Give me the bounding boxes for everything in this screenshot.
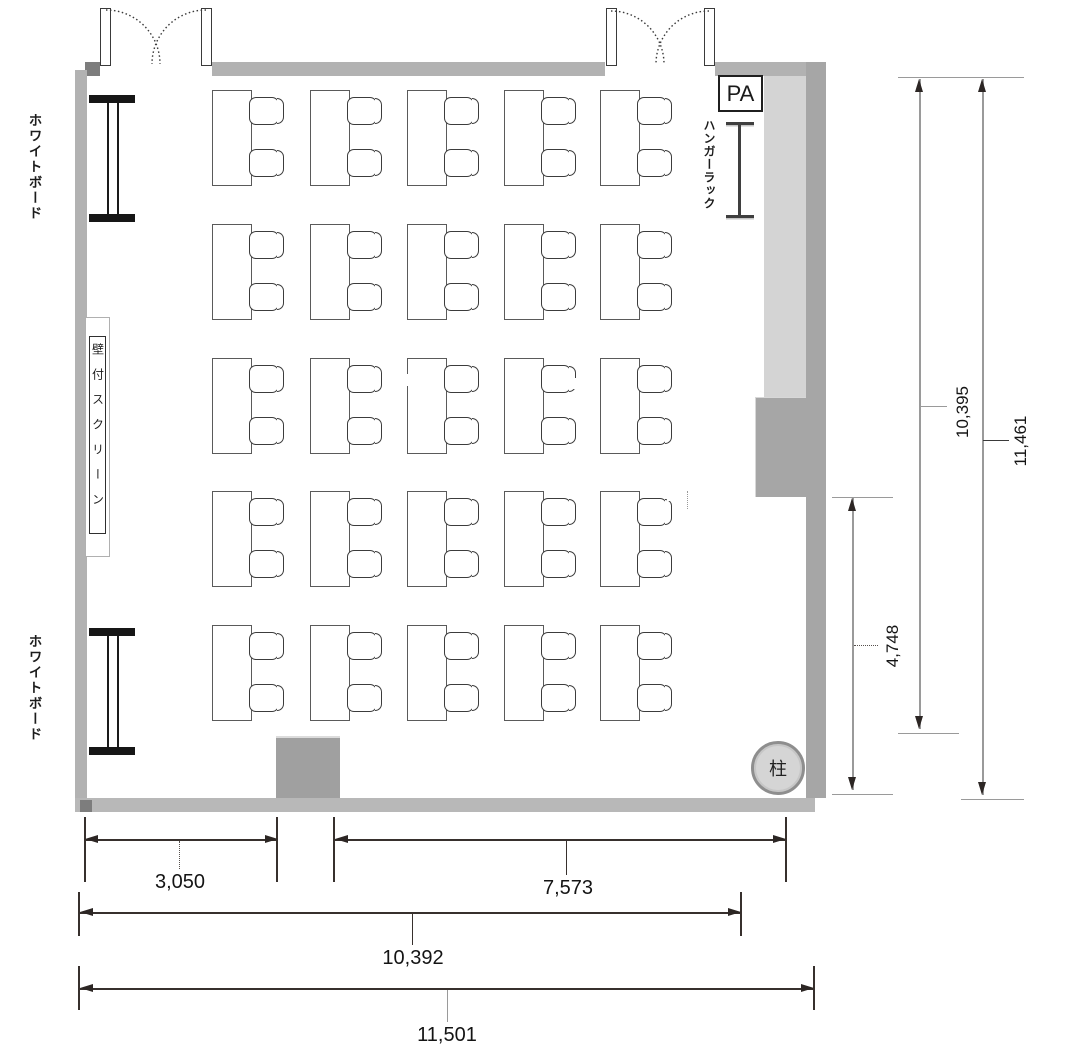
arrow-left-icon <box>80 908 93 916</box>
table-marker <box>569 378 594 389</box>
extension-line <box>961 799 1024 800</box>
extension-line-top <box>898 77 1024 78</box>
dim-leader <box>920 406 947 407</box>
chair <box>444 632 474 660</box>
chair <box>249 97 279 125</box>
dimension-label-3050: 3,050 <box>151 869 209 895</box>
dimension-label-right-overall: 11,461 <box>1010 399 1032 483</box>
chair <box>249 365 279 393</box>
extension-tick <box>785 817 787 882</box>
table <box>212 358 252 454</box>
chair <box>249 283 279 311</box>
dimension-line-right-overall <box>982 79 984 795</box>
chair <box>637 365 667 393</box>
arrow-right-icon <box>728 908 741 916</box>
dim-leader <box>179 841 180 869</box>
chair <box>347 365 377 393</box>
dimension-label-right-inner: 10,395 <box>952 370 974 454</box>
chair <box>347 632 377 660</box>
hanger-rack-cap-bottom <box>726 215 754 218</box>
dimension-line-right-partial <box>852 498 854 790</box>
dimension-line-10392 <box>80 912 741 914</box>
arrow-down-icon <box>848 777 856 790</box>
dimension-label-right-partial: 4,748 <box>882 604 904 688</box>
chair <box>444 684 474 712</box>
arrow-up-icon <box>978 79 986 92</box>
hanger-rack-label: ハンガーラック <box>703 119 715 210</box>
table <box>504 90 544 186</box>
table <box>212 224 252 320</box>
table <box>310 625 350 721</box>
dim-leader <box>566 841 567 875</box>
chair <box>444 498 474 526</box>
chair <box>249 498 279 526</box>
wall-screen-label: 壁付スクリーン <box>92 337 104 533</box>
chair <box>347 97 377 125</box>
table <box>407 358 447 454</box>
chair <box>541 684 571 712</box>
chair <box>249 417 279 445</box>
dim-leader <box>447 990 448 1022</box>
table <box>600 90 640 186</box>
chair <box>444 97 474 125</box>
chair <box>444 417 474 445</box>
arrow-up-icon <box>915 79 923 92</box>
chair <box>444 231 474 259</box>
dim-leader <box>854 645 878 646</box>
arrow-down-icon <box>978 782 986 795</box>
dimension-label-10392: 10,392 <box>377 945 449 971</box>
chair <box>541 417 571 445</box>
chair <box>444 550 474 578</box>
arrow-up-icon <box>848 498 856 511</box>
chair <box>637 550 667 578</box>
chair <box>541 550 571 578</box>
table <box>407 224 447 320</box>
table <box>504 224 544 320</box>
chair <box>637 97 667 125</box>
table <box>504 625 544 721</box>
chair <box>637 632 667 660</box>
whiteboard-bottom-shaft <box>107 636 119 747</box>
wall-screen-case: 壁付スクリーン <box>89 336 106 534</box>
dimension-line-3050 <box>85 839 278 841</box>
chair <box>249 632 279 660</box>
table <box>407 90 447 186</box>
chair <box>347 417 377 445</box>
whiteboard-top-label: ホワイトボード <box>27 113 41 222</box>
arrow-left-icon <box>335 835 348 843</box>
table-marker <box>667 479 677 501</box>
hanger-rack-stem <box>738 124 741 217</box>
chair <box>637 149 667 177</box>
table <box>212 90 252 186</box>
chair <box>249 684 279 712</box>
table <box>407 625 447 721</box>
chair <box>541 149 571 177</box>
pa-box: PA <box>718 75 763 112</box>
whiteboard-top-shaft <box>107 103 119 214</box>
arrow-left-icon <box>85 835 98 843</box>
table <box>600 491 640 587</box>
chair <box>541 365 571 393</box>
dimension-label-7573: 7,573 <box>539 875 597 901</box>
chair <box>249 149 279 177</box>
table <box>310 491 350 587</box>
table <box>212 491 252 587</box>
dim-leader <box>412 914 413 945</box>
table <box>407 491 447 587</box>
floor-plan: ホワイトボード ホワイトボード 壁付スクリーン PA ハンガーラック 柱 10,… <box>0 0 1068 1056</box>
chair <box>541 632 571 660</box>
chair <box>347 550 377 578</box>
table <box>310 358 350 454</box>
dimension-line-7573 <box>335 839 786 841</box>
table <box>600 625 640 721</box>
whiteboard-bottom-label: ホワイトボード <box>27 634 41 743</box>
chair <box>249 550 279 578</box>
arrow-right-icon <box>773 835 786 843</box>
arrow-left-icon <box>80 984 93 992</box>
extension-tick <box>84 817 86 882</box>
table-marker <box>394 374 413 386</box>
extension-line <box>832 497 893 498</box>
chair <box>347 283 377 311</box>
extension-line <box>898 733 959 734</box>
chair <box>347 684 377 712</box>
chair <box>541 283 571 311</box>
arrow-right-icon <box>801 984 814 992</box>
chair <box>444 283 474 311</box>
arrow-down-icon <box>915 716 923 729</box>
table <box>600 358 640 454</box>
table <box>504 358 544 454</box>
table <box>310 90 350 186</box>
dimension-label-11501: 11,501 <box>411 1022 483 1048</box>
table <box>504 491 544 587</box>
chair <box>347 149 377 177</box>
chair <box>249 231 279 259</box>
whiteboard-bottom-bar2 <box>89 747 135 755</box>
extension-line <box>832 794 893 795</box>
chair <box>541 97 571 125</box>
chair <box>347 231 377 259</box>
extension-tick <box>276 817 278 882</box>
arrow-right-icon <box>265 835 278 843</box>
chair <box>637 684 667 712</box>
chair <box>541 231 571 259</box>
chair <box>637 498 667 526</box>
chair <box>347 498 377 526</box>
dimension-line-right-inner <box>919 79 921 729</box>
chair <box>637 283 667 311</box>
chair <box>637 417 667 445</box>
whiteboard-top-bar2 <box>89 214 135 222</box>
chair <box>541 498 571 526</box>
chair <box>444 365 474 393</box>
chair <box>444 149 474 177</box>
pillar: 柱 <box>751 741 805 795</box>
table-marker <box>687 491 698 509</box>
dim-leader <box>983 440 1009 441</box>
extension-tick <box>333 817 335 882</box>
table <box>600 224 640 320</box>
chair <box>637 231 667 259</box>
whiteboard-top-bar <box>89 95 135 103</box>
table <box>212 625 252 721</box>
whiteboard-bottom-bar <box>89 628 135 636</box>
table <box>310 224 350 320</box>
